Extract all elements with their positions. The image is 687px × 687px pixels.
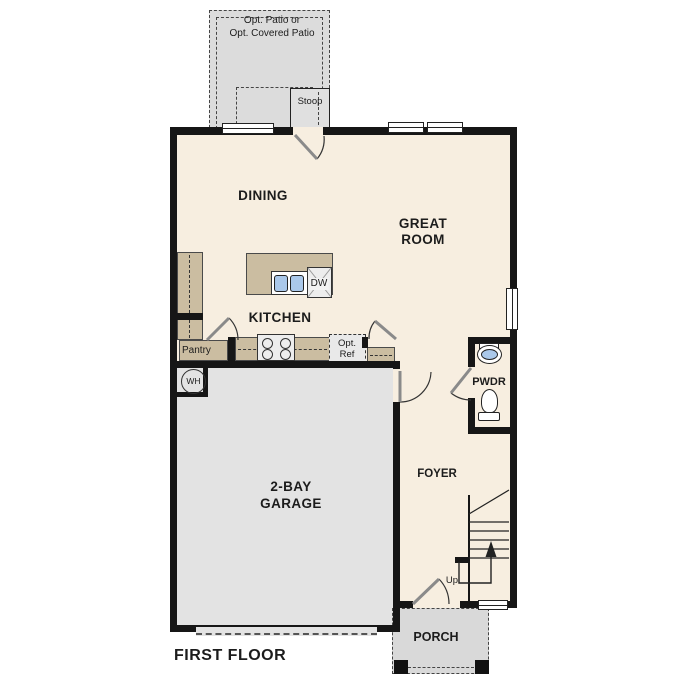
stove-icon	[257, 334, 295, 361]
stair-rail-line	[468, 495, 470, 601]
wall-east	[510, 127, 517, 608]
burner-icon	[262, 349, 273, 360]
wall-garage-south-right	[377, 625, 400, 632]
window-icon-east	[506, 288, 518, 330]
wall-counter-stub	[228, 337, 235, 361]
wall-stair-stub	[455, 557, 469, 563]
opt-ref-label-1: Opt.	[338, 338, 356, 349]
toilet-bowl-icon	[481, 389, 498, 413]
wall-west	[170, 127, 177, 632]
garage-label-1: 2-BAY	[270, 479, 311, 495]
wall-powder-south	[468, 427, 510, 434]
burner-icon	[280, 349, 291, 360]
window-icon-greatroom-2	[427, 122, 463, 133]
dining-label: DINING	[238, 188, 288, 204]
great-room-label-2: ROOM	[401, 232, 445, 248]
toilet-tank-icon	[478, 412, 500, 421]
garage-door-opening	[393, 369, 400, 402]
sink-basin-left	[274, 275, 288, 292]
burner-icon	[280, 338, 291, 349]
tall-cabinet	[177, 252, 203, 340]
kitchen-label: KITCHEN	[249, 310, 312, 326]
water-heater-label: WH	[186, 376, 200, 386]
powder-sink-basin	[481, 349, 498, 360]
garage-door-dash-line	[196, 633, 377, 635]
porch-label: PORCH	[413, 630, 458, 645]
patio-label-line2: Opt. Covered Patio	[229, 28, 314, 40]
stoop-area	[290, 88, 330, 128]
dishwasher-label: DW	[310, 278, 329, 290]
garage-label-2: GARAGE	[260, 496, 322, 512]
wall-pantry-stub	[177, 313, 203, 320]
main-living-area-floor	[173, 131, 510, 364]
stoop-label: Stoop	[298, 96, 323, 107]
foyer-label: FOYER	[417, 468, 457, 482]
floor-plan: Opt. Patio or Opt. Covered Patio Stoop D…	[0, 0, 687, 687]
burner-icon	[262, 338, 273, 349]
window-icon-stair	[478, 600, 508, 610]
stoop-door-opening	[293, 127, 323, 135]
cabinet-dash-line	[189, 255, 190, 338]
closet-dash-line	[370, 355, 392, 356]
sink-basin-right	[290, 275, 304, 292]
great-room-label-1: GREAT	[399, 216, 447, 232]
garage-door-header-line	[196, 625, 377, 627]
powder-label: PWDR	[472, 376, 506, 389]
wall-garage-south-left	[170, 625, 196, 632]
porch-post-left	[394, 660, 408, 674]
patio-label-line1: Opt. Patio or	[244, 15, 300, 27]
window-icon-greatroom-1	[388, 122, 424, 133]
porch-post-right	[475, 660, 489, 674]
plan-title: FIRST FLOOR	[174, 646, 286, 665]
wall-closet-stub	[362, 337, 368, 348]
window-icon-dining	[222, 123, 274, 134]
up-label: Up	[446, 575, 458, 586]
pantry-label: Pantry	[182, 345, 211, 357]
porch-step-line	[408, 667, 474, 668]
opt-ref-label-2: Ref	[340, 349, 355, 360]
front-door-opening	[413, 601, 460, 608]
